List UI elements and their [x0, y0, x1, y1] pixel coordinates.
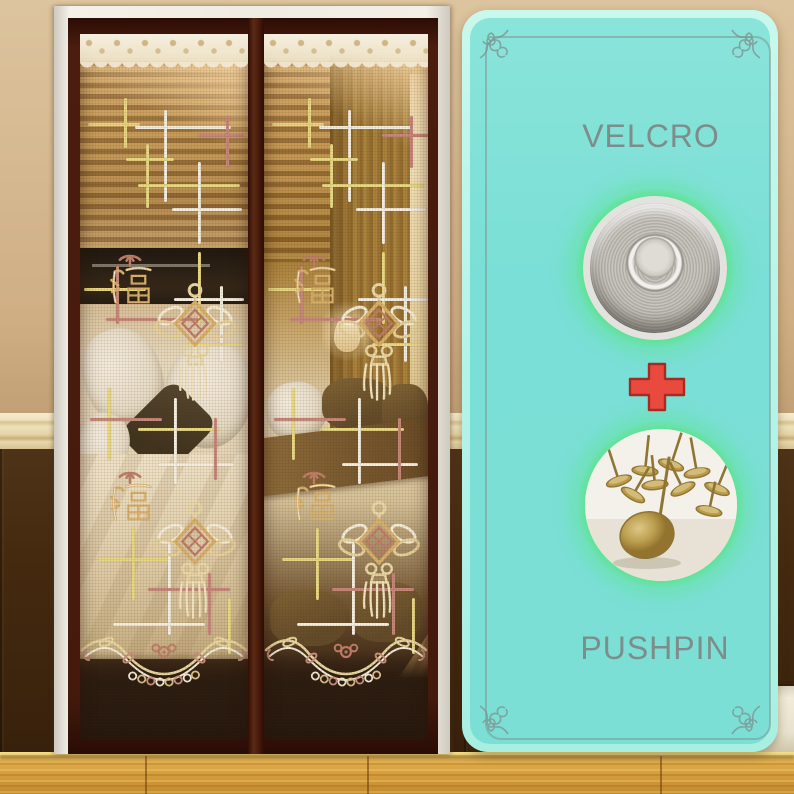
corner-flourish-icon: [722, 696, 762, 736]
promo-card-inner: VELCRO PUSHPIN: [470, 18, 770, 744]
plus-icon: [628, 362, 686, 412]
velcro-label: VELCRO: [531, 118, 771, 155]
velcro-glow-ring: [573, 186, 737, 350]
pushpin-photo: [585, 429, 737, 581]
mesh-texture: [264, 34, 428, 740]
door-frame-white: [54, 6, 450, 754]
corner-flourish-icon: [478, 696, 518, 736]
curtain-panel-right: [264, 34, 428, 740]
curtain-frame-brown: [68, 18, 438, 754]
mesh-texture: [80, 34, 248, 740]
floor-shadow: [0, 755, 794, 760]
corner-flourish-icon: [722, 28, 762, 68]
lace-trim-top: [264, 34, 428, 62]
product-image: VELCRO PUSHPIN: [0, 0, 794, 794]
velcro-dot-photo: [583, 196, 727, 340]
floor-plank-joint: [367, 756, 369, 794]
promo-card: VELCRO PUSHPIN: [462, 10, 778, 752]
floor-plank-joint: [660, 756, 662, 794]
pushpin-label: PUSHPIN: [535, 630, 775, 667]
lace-trim-top: [80, 34, 248, 62]
pushpin-glow-ring: [575, 419, 747, 591]
corner-flourish-icon: [478, 28, 518, 68]
curtain-panel-left: [80, 34, 248, 740]
floor-plank-joint: [145, 756, 147, 794]
curtain-center-seam: [248, 18, 264, 754]
